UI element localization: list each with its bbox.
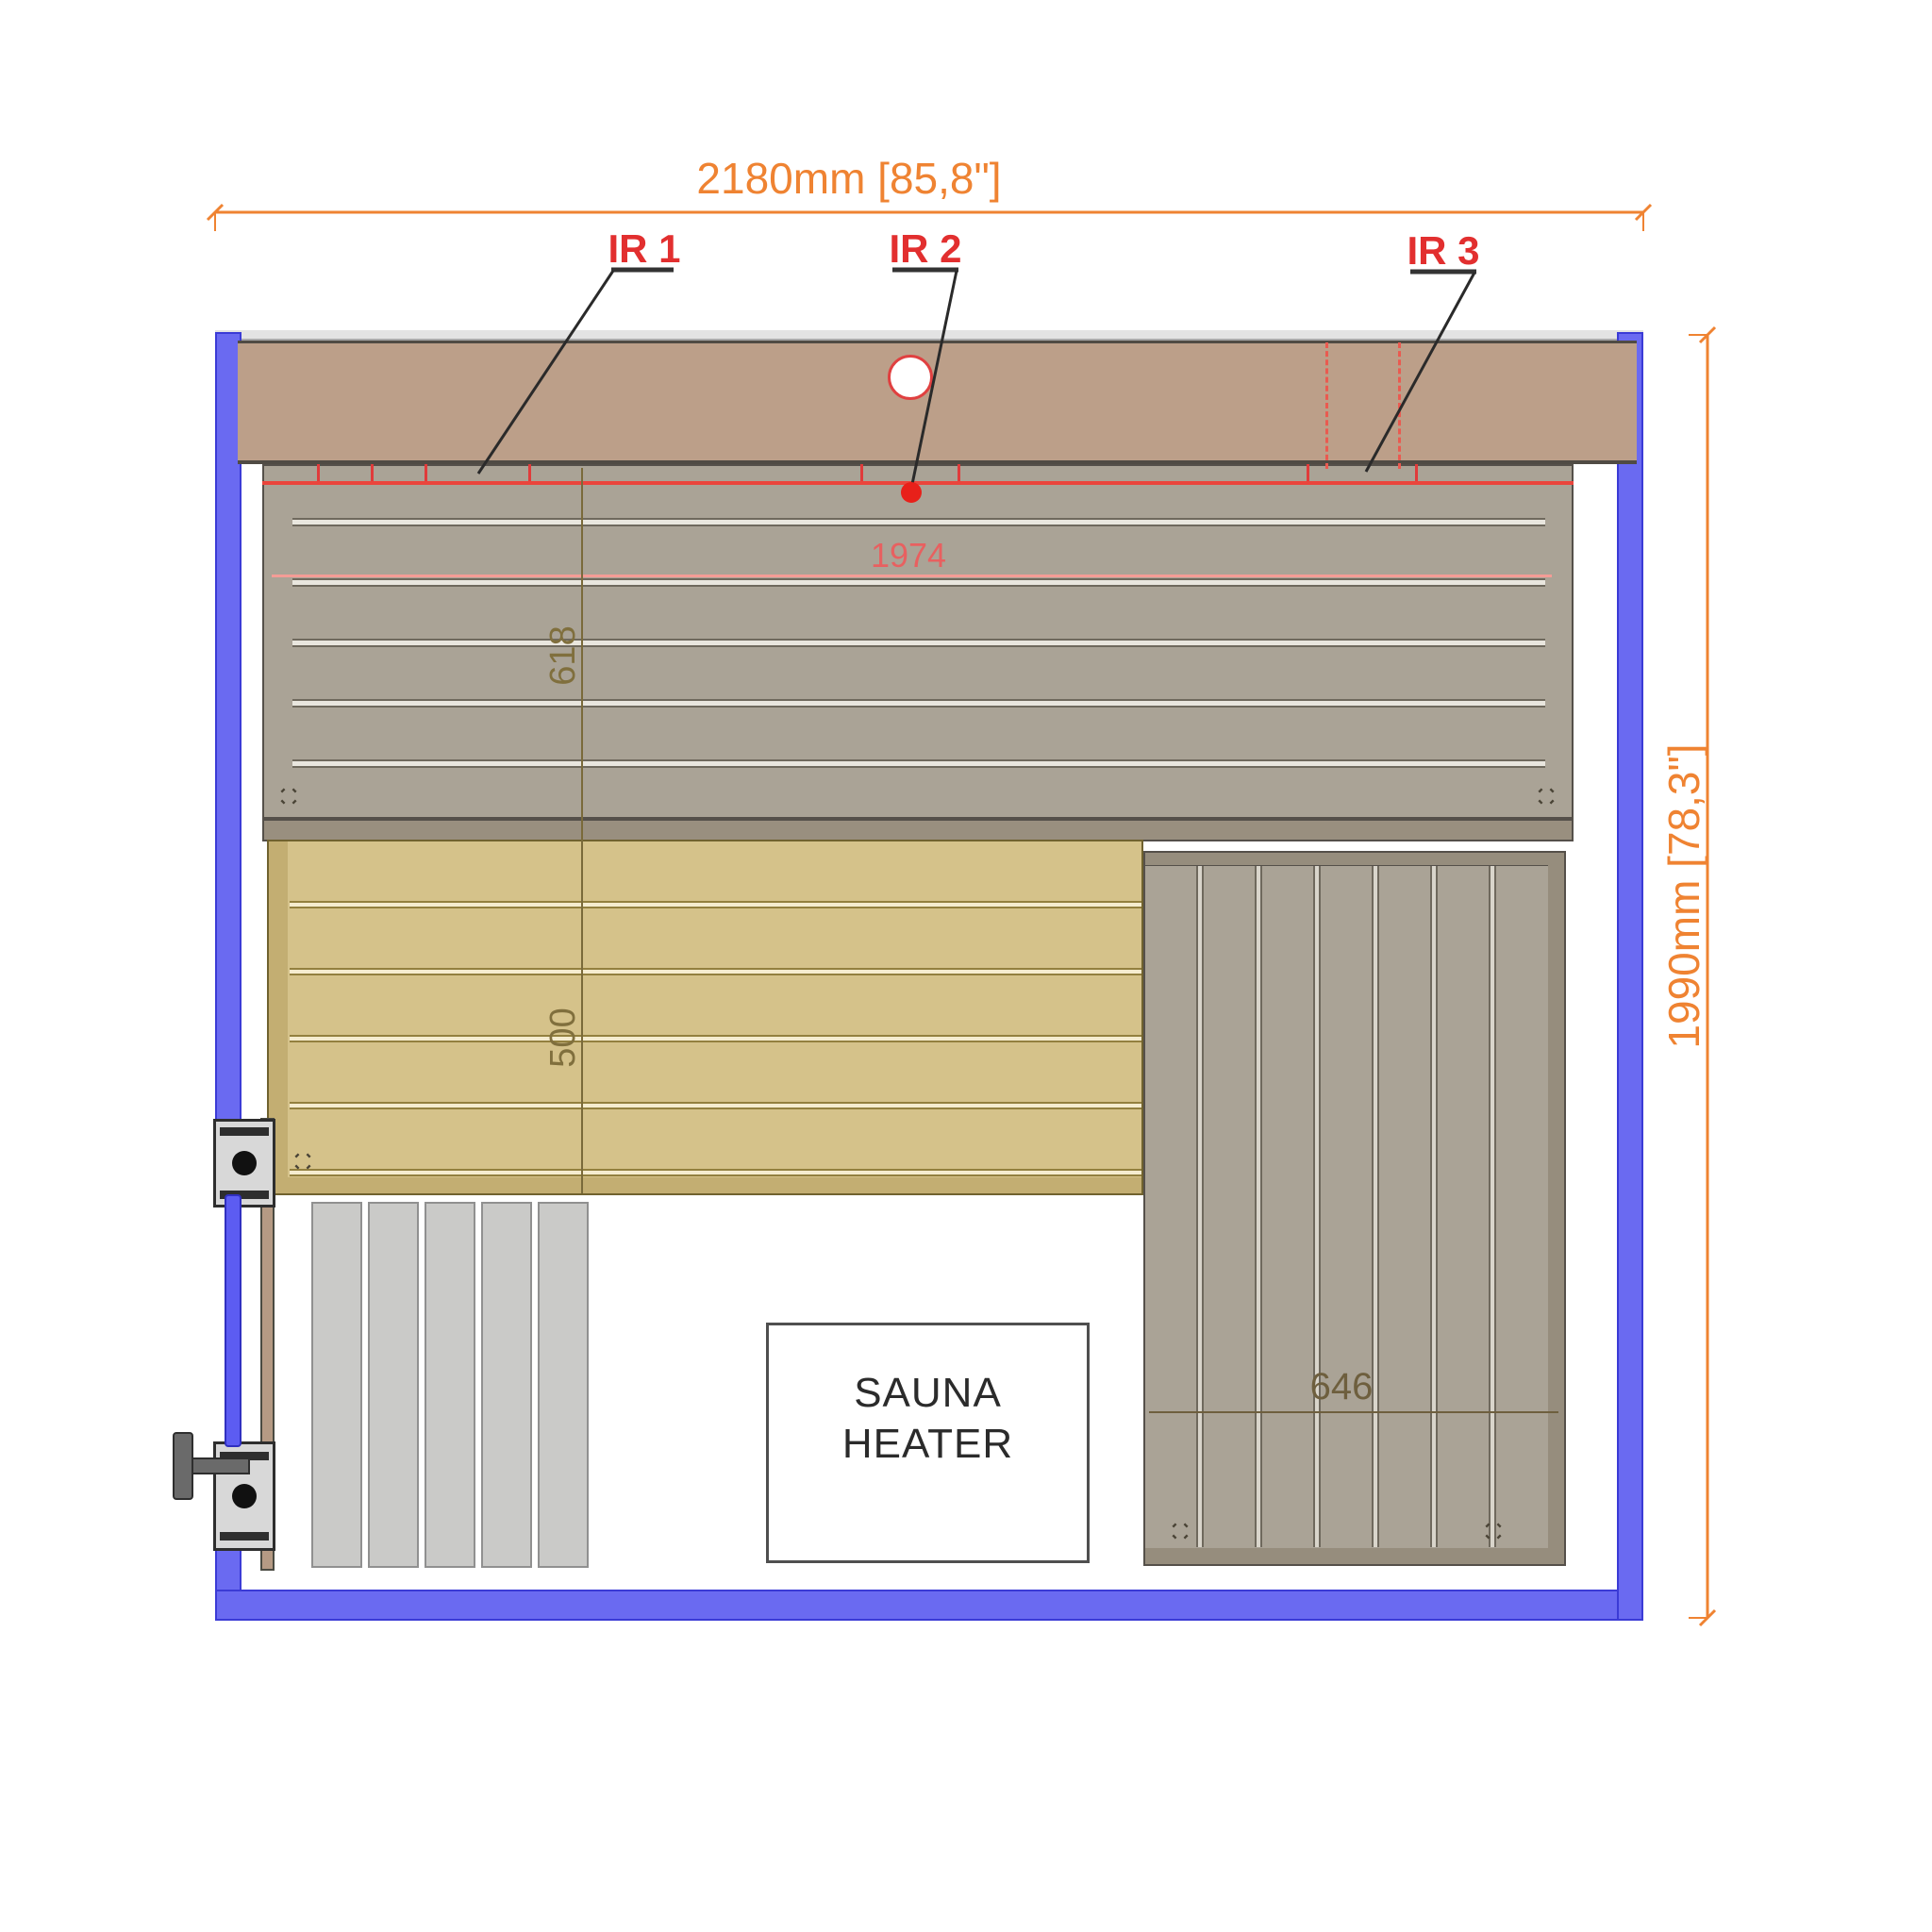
dim-1974-label: 1974 [871,536,946,575]
leader-and-dimension-lines [0,0,1932,1932]
door-handle [173,1432,193,1500]
ir3-label: IR 3 [1407,228,1479,274]
dim-overall-depth-label: 1990mm [78,3"] [1658,743,1709,1048]
dim-overall-width-label: 2180mm [85,8"] [696,153,1001,204]
dim-646-label: 646 [1310,1366,1374,1408]
sauna-floorplan-drawing: SAUNA HEATER [0,0,1932,1932]
ir2-sensor-dot [901,482,922,503]
ir2-label: IR 2 [889,226,961,272]
door-glass [225,1194,241,1447]
dim-500-label: 500 [543,1008,584,1067]
door-handle-stem [192,1457,250,1474]
ir1-label: IR 1 [608,226,680,272]
door-hinge-top [213,1119,275,1207]
dim-618-label: 618 [543,625,584,685]
